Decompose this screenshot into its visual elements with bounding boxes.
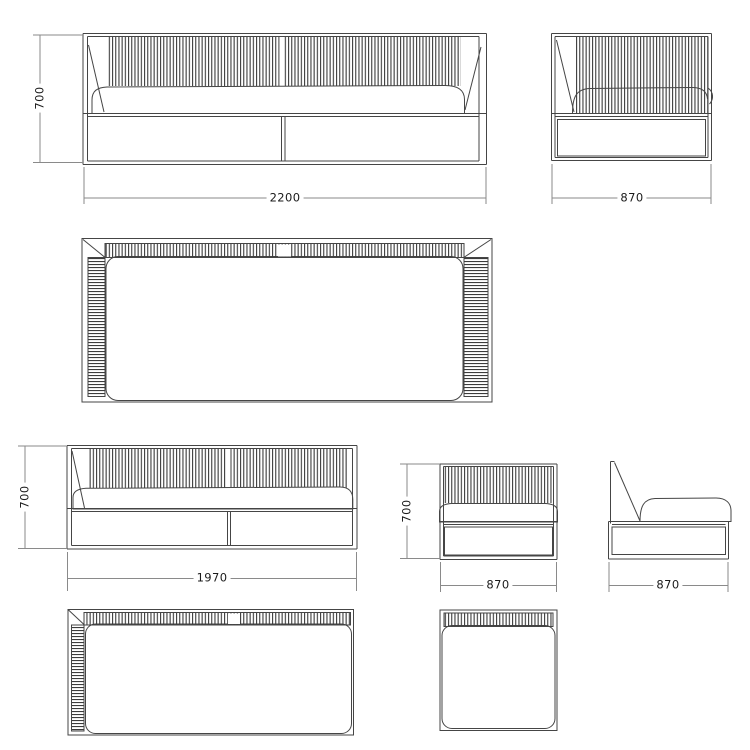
loveseat-top-view	[68, 610, 354, 736]
seat-cushion	[73, 487, 353, 509]
corner-miter-right	[465, 240, 492, 258]
seat-cushion-plan	[86, 624, 352, 734]
frame-lines	[609, 522, 729, 560]
back-slat-band	[84, 613, 351, 626]
armchair-side-view	[609, 462, 732, 593]
back-lean-diagonal	[615, 463, 641, 522]
left-arm-band	[88, 258, 105, 397]
back-slats-seam-gap	[226, 448, 231, 490]
seat-cushion-plan	[442, 626, 555, 729]
dim-sofa-side-width: 870	[617, 192, 646, 205]
armchair-front-view	[400, 464, 558, 592]
back-band-seam-gap	[278, 245, 291, 257]
back-slats-seam-gap	[280, 36, 285, 86]
back-slats	[88, 448, 347, 489]
sofa-top-view	[82, 239, 492, 403]
seat-cushion	[92, 86, 465, 114]
technical-drawing-sheet: 700 2200 870 700 1970 700 870 870	[0, 0, 750, 750]
seat-cushion-plan	[106, 257, 463, 401]
left-arm-band	[72, 625, 85, 731]
dim-armchair-side-width: 870	[653, 579, 682, 592]
dim-sofa-front-width: 2200	[267, 192, 304, 205]
sofa-side-view	[552, 34, 713, 205]
seat-cushion	[640, 498, 731, 522]
armchair-top-view	[440, 610, 557, 731]
back-post	[611, 462, 641, 524]
right-arm-band	[464, 258, 488, 397]
back-slats	[576, 37, 708, 114]
back-band-seam-gap	[228, 614, 240, 625]
dim-loveseat-front-height: 700	[19, 482, 32, 511]
dim-armchair-front-width: 870	[483, 579, 512, 592]
loveseat-front-view	[18, 446, 357, 592]
drawing-canvas	[0, 0, 750, 750]
corner-miter-left	[83, 240, 105, 258]
corner-miter-left	[69, 610, 85, 625]
back-lean-diagonal	[557, 40, 575, 112]
back-slat-band	[444, 613, 553, 627]
dim-sofa-front-height: 700	[34, 83, 47, 112]
dim-armchair-front-height: 700	[401, 496, 414, 525]
sofa-front-view	[33, 34, 487, 205]
back-slats	[444, 467, 553, 503]
dim-loveseat-front-width: 1970	[194, 572, 231, 585]
seat-cushion	[440, 504, 558, 523]
